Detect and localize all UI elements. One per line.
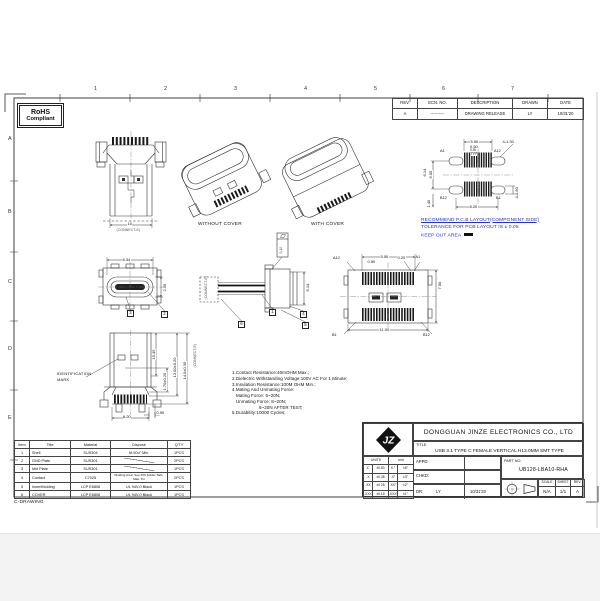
pcb-pin-a12: A12 bbox=[494, 150, 501, 154]
without-cover-label: WITHOUT COVER bbox=[198, 223, 242, 228]
tol-cell: ±5° bbox=[398, 465, 414, 474]
dim-top-depth: 2.56 bbox=[163, 283, 167, 292]
tolerance-table: UNITS mm X.±0.50X.°±5° .X±0.38.X°±3° .XX… bbox=[363, 456, 414, 499]
logo-text: JZ bbox=[383, 436, 396, 447]
top-view-linework bbox=[98, 257, 166, 311]
appd-divider bbox=[464, 457, 502, 472]
cell: Mid Plate bbox=[30, 465, 71, 473]
parts-row: 5InsertMoldingLCP E6808UL 94V-0 Black1PC… bbox=[15, 483, 191, 491]
dim-bottom-depth: 7.00 bbox=[438, 281, 442, 290]
dim-pcb-row-pitch-outer: 6.14 bbox=[423, 168, 427, 177]
notes-block: 1.Contact Resistance:40mOHM Max.; 2.Diel… bbox=[232, 370, 347, 416]
tol-cell: .XXX° bbox=[389, 490, 398, 499]
dim-pcb-pad-span: 5.50 bbox=[470, 140, 479, 144]
company-cell: DONGGUAN JINZE ELECTRONICS CO., LTD bbox=[413, 423, 584, 441]
dr-divider bbox=[464, 485, 502, 500]
dim-front2-d3: 13.00±0.20 bbox=[173, 357, 177, 378]
scale-sheet-rev-table: SCALE SHEET REV. N/A 1/1 A bbox=[538, 479, 585, 498]
cell: InsertMolding bbox=[30, 483, 71, 491]
cell: COVER bbox=[30, 491, 71, 499]
dim-pcb-corner-holes: 4-1.30 bbox=[502, 140, 514, 144]
bottom-pin-a12: A12 bbox=[333, 257, 340, 261]
drawing-linework bbox=[0, 0, 600, 600]
cell: Ni.50u" Min. bbox=[111, 449, 168, 457]
grid-col-label: 4 bbox=[304, 87, 307, 93]
balloon-3-number: 3 bbox=[129, 311, 131, 315]
dim-side-height: 6.14 bbox=[306, 283, 310, 292]
cell: 3 bbox=[15, 465, 30, 473]
tol-cell: .XXX bbox=[364, 490, 373, 499]
appd-row: APPD: bbox=[413, 456, 501, 470]
balloon-5: 5 bbox=[302, 322, 309, 329]
pcb-pin-b1: B1 bbox=[496, 197, 501, 201]
company-name: DONGGUAN JINZE ELECTRONICS CO., LTD bbox=[424, 429, 573, 436]
pcb-pin-b12: B12 bbox=[440, 197, 447, 201]
revision-header-row: REV. ECN. NO. DESCRIPTION DRAWN DATE bbox=[393, 99, 584, 109]
date-value: 10/31'20 bbox=[548, 109, 584, 120]
dim-bottom-pad-width: 0.20 bbox=[397, 256, 406, 260]
grid-row-label: C bbox=[8, 280, 12, 286]
grid-row-label: E bbox=[8, 416, 12, 422]
bottom-view-linework bbox=[340, 254, 438, 334]
balloon-6-number: 6 bbox=[240, 322, 242, 326]
bottom-pin-b1: B1 bbox=[332, 334, 337, 338]
dim-bottom-width: 11.00 bbox=[379, 328, 390, 332]
cell: SUS301 bbox=[71, 465, 111, 473]
dim-pcb-pad-width-qual: TYP bbox=[471, 153, 477, 156]
part-no-value: UB128-LBA10-RHA bbox=[502, 467, 585, 473]
bottom-pin-b12: B12 bbox=[423, 334, 430, 338]
pcb-note-line1: RECOMMEND P.C.B LAYOUT(COMPONENT SIDE) bbox=[421, 219, 539, 224]
tol-cell: ±0.25 bbox=[373, 482, 389, 491]
grid-col-label: 1 bbox=[94, 87, 97, 93]
revision-row: A ---------- DRAWING RELEASE LY 10/31'20 bbox=[393, 109, 584, 120]
balloon-2: 2 bbox=[161, 311, 168, 318]
grid-col-label: 7 bbox=[511, 87, 514, 93]
note-line: 2.Dielectric Withstanding Voltage:100V A… bbox=[232, 376, 347, 382]
grid-row-label: A bbox=[8, 137, 12, 143]
rev-value2: A bbox=[571, 487, 585, 498]
dim-pcb-corner-pad: 4-0.80 bbox=[515, 187, 519, 199]
front-view-linework bbox=[96, 131, 166, 228]
cell: Molding Area: See P/N Solder Tails: Matt… bbox=[111, 473, 168, 483]
title-label: TITLE: bbox=[416, 443, 427, 447]
balloon-3: 3 bbox=[127, 310, 134, 317]
dim-pcb-edge-offset: 1.40 bbox=[427, 199, 431, 208]
rev-value: A bbox=[393, 109, 418, 120]
logo-cell: JZ bbox=[363, 423, 413, 456]
grid-col-label: 6 bbox=[442, 87, 445, 93]
with-cover-label: WITH COVER bbox=[311, 223, 344, 228]
cell: 4 bbox=[15, 473, 30, 483]
cell: 2PCS bbox=[168, 473, 191, 483]
cell bbox=[111, 457, 168, 465]
dr-label: DR: bbox=[416, 489, 423, 494]
rohs-line2: Compliant bbox=[26, 116, 54, 122]
keep-out-area-swatch bbox=[464, 233, 473, 237]
dim-top-width: 8.34 bbox=[122, 258, 131, 262]
title-cell: TITLE: USB 3.1 TYPE C FEMALE VERTICAL H1… bbox=[413, 441, 584, 456]
rev-label: REV. bbox=[571, 480, 585, 487]
iso-without-cover-linework bbox=[172, 135, 273, 221]
cell: 1 bbox=[15, 449, 30, 457]
tol-cell: X.° bbox=[389, 465, 398, 474]
cell: LCP E6808 bbox=[71, 491, 111, 499]
tol-cell: X. bbox=[364, 465, 373, 474]
cell: GND Plate bbox=[30, 457, 71, 465]
balloon-5-number: 5 bbox=[304, 323, 306, 327]
balloon-4: 4 bbox=[300, 311, 307, 318]
cell: SUS301 bbox=[71, 457, 111, 465]
sheet-label: SHEET bbox=[556, 480, 571, 487]
dim-side-flatness: 0.10 bbox=[280, 246, 283, 254]
grid-col-label: 5 bbox=[374, 87, 377, 93]
page: { "sheet": { "grid_cols": ["1","2","3","… bbox=[0, 0, 600, 600]
balloon-4-number: 4 bbox=[302, 312, 304, 316]
parts-row: 2GND PlateSUS3012PCS bbox=[15, 457, 191, 465]
cell: 6 bbox=[15, 491, 30, 499]
dim-front2-d1: 15.45 bbox=[152, 349, 156, 360]
part-no-label: PART NO. bbox=[504, 459, 522, 463]
tol-cell: .X° bbox=[389, 473, 398, 482]
dr-name: LY bbox=[436, 489, 441, 494]
tol-cell: .XX bbox=[364, 482, 373, 491]
cell: 1PCS bbox=[168, 483, 191, 491]
identification-mark-label2: MARK bbox=[57, 378, 69, 382]
cell: C7025 bbox=[71, 473, 111, 483]
title-block: JZ UNITS mm X.±0.50X.°±5° .X±0.38.X°±3° … bbox=[362, 422, 583, 497]
tol-cell: .X bbox=[364, 473, 373, 482]
dim-front2-d4: 14.0±0.30 bbox=[183, 361, 187, 380]
bottom-pin-a1: A1 bbox=[416, 256, 421, 260]
grid-col-label: 2 bbox=[164, 87, 167, 93]
cell: 2 bbox=[15, 457, 30, 465]
pcb-note-block: RECOMMEND P.C.B LAYOUT(COMPONENT SIDE) T… bbox=[421, 219, 539, 240]
chkd-label: CHKD: bbox=[416, 473, 429, 478]
ref-connect-e-front2: (CONNECT-E) bbox=[194, 343, 198, 368]
units-label: UNITS bbox=[364, 457, 389, 465]
company-logo: JZ bbox=[364, 424, 413, 456]
dim-front2-d5: 8.20 bbox=[123, 415, 132, 419]
description-value: DRAWING RELEASE bbox=[458, 109, 513, 120]
parts-table: Item Title Material Dispose Q'TY 1ShellS… bbox=[14, 440, 191, 499]
balloon-6: 6 bbox=[238, 321, 245, 328]
tol-cell: ±2° bbox=[398, 482, 414, 491]
ecn-header: ECN. NO. bbox=[418, 99, 458, 109]
revision-table: REV. ECN. NO. DESCRIPTION DRAWN DATE A -… bbox=[392, 98, 584, 120]
grid-row-label: D bbox=[8, 347, 12, 353]
dim-front-width: 10 bbox=[127, 222, 132, 226]
parts-row: 6COVERLCP E6808UL 94V-0 Black1PCS bbox=[15, 491, 191, 499]
scale-label: SCALE bbox=[539, 480, 556, 487]
material-header: Material bbox=[71, 441, 111, 449]
pcb-pin-a1: A1 bbox=[440, 150, 445, 154]
description-header: DESCRIPTION bbox=[458, 99, 513, 109]
cell: LCP E6808 bbox=[71, 483, 111, 491]
rev-header: REV. bbox=[393, 99, 418, 109]
part-no-cell: PART NO. UB128-LBA10-RHA bbox=[501, 456, 584, 479]
drawn-header: DRAWN bbox=[513, 99, 548, 109]
ecn-value: ---------- bbox=[418, 109, 458, 120]
third-angle-projection-icon bbox=[502, 480, 538, 498]
tol-cell: ±0.15 bbox=[373, 490, 389, 499]
ref-connect-e: (CONNECT-E) bbox=[116, 229, 141, 233]
sheet-value: 1/1 bbox=[556, 487, 571, 498]
cell: UL 94V-0 Black bbox=[111, 491, 168, 499]
drawing-type-note: C-DRAWING bbox=[14, 500, 44, 505]
projection-cell bbox=[501, 479, 538, 498]
cell: UL 94V-0 Black bbox=[111, 483, 168, 491]
units-value: mm bbox=[389, 457, 414, 465]
cell: 1PCS bbox=[168, 449, 191, 457]
chkd-divider bbox=[464, 471, 502, 486]
chkd-row: CHKD: bbox=[413, 470, 501, 484]
cell: 2PCS bbox=[168, 457, 191, 465]
item-header: Item bbox=[15, 441, 30, 449]
parts-row: 1ShellSUS304Ni.50u" Min.1PCS bbox=[15, 449, 191, 457]
dr-row: DR: LY 10/31'20 bbox=[413, 484, 501, 498]
cell: Contact bbox=[30, 473, 71, 483]
dim-pcb-row-pitch-inner: 6.00 bbox=[429, 170, 433, 179]
pcb-note-line3: KEEP OUT AREA bbox=[421, 233, 539, 239]
tol-cell: ±0.38 bbox=[373, 473, 389, 482]
dim-front2-d6: 0.90 bbox=[156, 411, 165, 415]
appd-label: APPD: bbox=[416, 459, 429, 464]
dim-bottom-pad-span: 5.50 bbox=[380, 255, 389, 259]
tol-cell: ±1° bbox=[398, 490, 414, 499]
cell: SUS304 bbox=[71, 449, 111, 457]
dim-bottom-pad-offset: 0.50 bbox=[367, 260, 376, 264]
cell bbox=[111, 465, 168, 473]
cell: 1PCS bbox=[168, 465, 191, 473]
pcb-note-line2: TOLERANCE FOR PCB LAYOUT IS ± 0.05 bbox=[421, 226, 539, 231]
rohs-line1: RoHS bbox=[31, 109, 50, 116]
tol-cell: ±0.50 bbox=[373, 465, 389, 474]
cell: 5 bbox=[15, 483, 30, 491]
keep-out-area-label: KEEP OUT AREA bbox=[421, 233, 461, 238]
parts-row: 4ContactC7025Molding Area: See P/N Solde… bbox=[15, 473, 191, 483]
title-header: Title bbox=[30, 441, 71, 449]
drawn-value: LY bbox=[513, 109, 548, 120]
page-bottom-band bbox=[0, 533, 600, 601]
balloon-2-number: 2 bbox=[163, 312, 165, 316]
tol-cell: ±3° bbox=[398, 473, 414, 482]
dispose-header: Dispose bbox=[111, 441, 168, 449]
scale-value: N/A bbox=[539, 487, 556, 498]
cell: Shell bbox=[30, 449, 71, 457]
iso-with-cover-linework bbox=[271, 130, 375, 223]
side-view-linework bbox=[200, 233, 306, 322]
tol-cell: .XX° bbox=[389, 482, 398, 491]
dim-front2-d2: 1.70±0.20 bbox=[163, 372, 167, 391]
drawing-title: USB 3.1 TYPE C FEMALE VERTICAL H13.0MM S… bbox=[414, 449, 585, 454]
balloon-1: 1 bbox=[269, 309, 276, 316]
grid-row-label: B bbox=[8, 210, 12, 216]
qty-header: Q'TY bbox=[168, 441, 191, 449]
parts-header-row: Item Title Material Dispose Q'TY bbox=[15, 441, 191, 449]
dim-pcb-hole-span: 8.20 bbox=[469, 205, 478, 209]
balloon-1-number: 1 bbox=[271, 310, 273, 314]
date-header: DATE bbox=[548, 99, 584, 109]
identification-mark-label: IDENTIFICATION bbox=[57, 372, 91, 376]
parts-row: 3Mid PlateSUS3011PCS bbox=[15, 465, 191, 473]
rohs-stamp: RoHS Compliant bbox=[17, 103, 64, 128]
ref-connect-e-side: (CONNECT-E) bbox=[205, 275, 209, 300]
cell: 1PCS bbox=[168, 491, 191, 499]
grid-col-label: 3 bbox=[234, 87, 237, 93]
note-line: 5.Durability:10000 Cycles; bbox=[232, 410, 347, 416]
